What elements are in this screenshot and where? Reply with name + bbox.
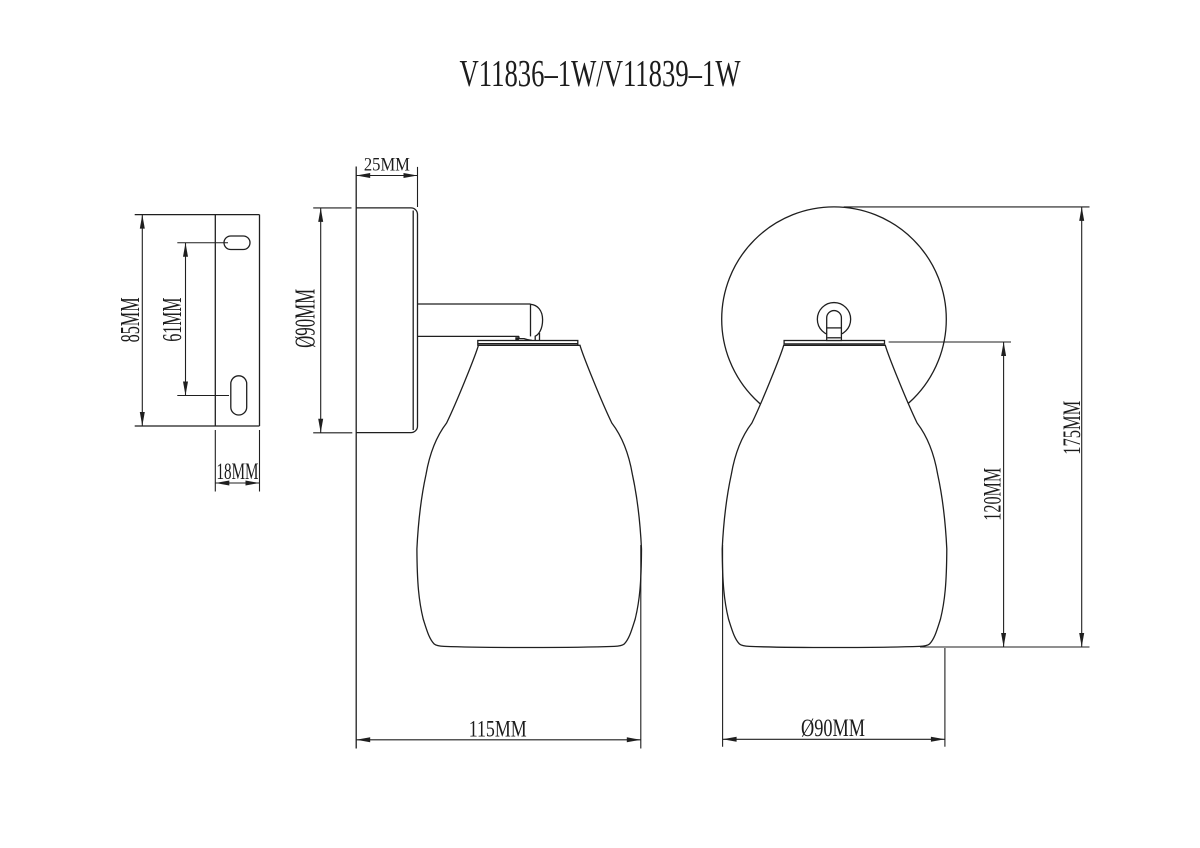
svg-text:120MM: 120MM	[980, 468, 1007, 521]
svg-text:V11836–1W/V11839–1W: V11836–1W/V11839–1W	[460, 53, 741, 95]
svg-text:61MM: 61MM	[157, 298, 187, 342]
svg-text:18MM: 18MM	[217, 459, 259, 484]
svg-text:85MM: 85MM	[115, 297, 145, 342]
svg-text:Ø90MM: Ø90MM	[291, 289, 322, 348]
svg-text:Ø90MM: Ø90MM	[801, 715, 865, 742]
svg-text:25MM: 25MM	[364, 154, 410, 175]
svg-text:115MM: 115MM	[469, 717, 527, 743]
svg-text:175MM: 175MM	[1059, 401, 1086, 455]
